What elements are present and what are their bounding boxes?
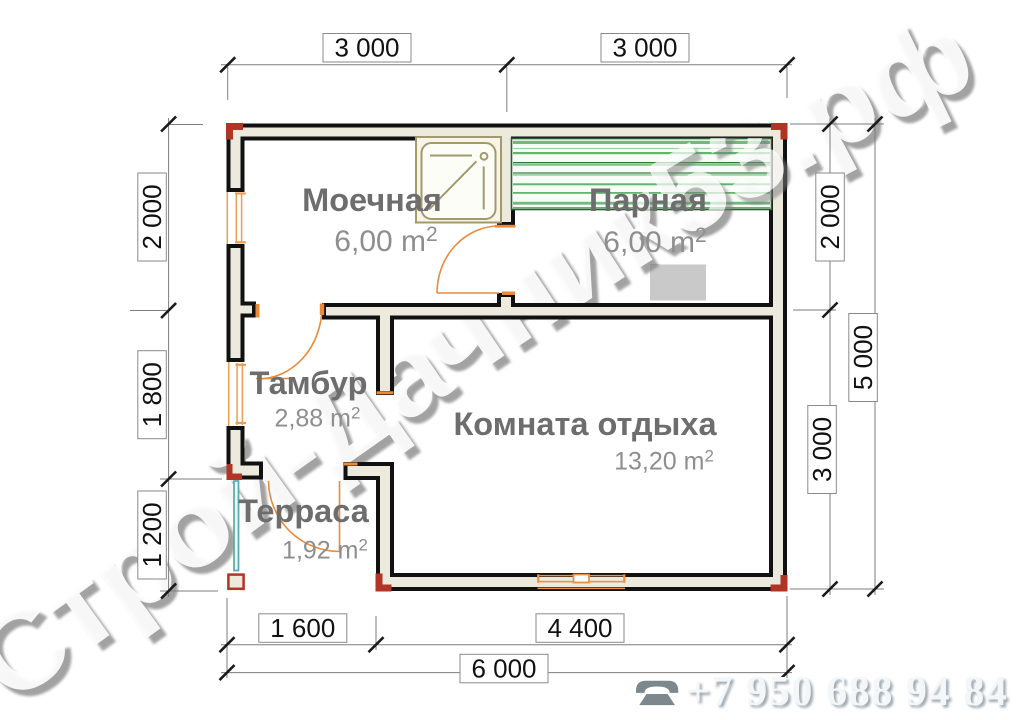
- svg-text:Моечная: Моечная: [302, 182, 442, 218]
- svg-text:1 800: 1 800: [137, 362, 167, 427]
- svg-text:6,00 m2: 6,00 m2: [334, 223, 437, 258]
- svg-text:3 000: 3 000: [612, 33, 677, 63]
- svg-text:Комната отдыха: Комната отдыха: [453, 406, 717, 442]
- svg-text:1 600: 1 600: [270, 613, 335, 643]
- svg-text:1 200: 1 200: [137, 502, 167, 567]
- svg-text:6,00 m2: 6,00 m2: [603, 224, 706, 259]
- svg-text:3 000: 3 000: [334, 33, 399, 63]
- svg-text:13,20 m2: 13,20 m2: [614, 447, 714, 476]
- svg-text:6 000: 6 000: [471, 653, 536, 683]
- svg-text:3 000: 3 000: [807, 417, 837, 482]
- svg-text:Парная: Парная: [589, 182, 707, 218]
- svg-text:5 000: 5 000: [848, 325, 878, 390]
- svg-text:Терраса: Терраса: [238, 493, 370, 529]
- svg-text:2,88 m2: 2,88 m2: [275, 404, 361, 433]
- svg-text:Тамбур: Тамбур: [250, 365, 368, 401]
- svg-text:1,92 m2: 1,92 m2: [282, 536, 368, 565]
- svg-text:+7 950 688 94 84: +7 950 688 94 84: [686, 669, 1009, 715]
- svg-text:4 400: 4 400: [547, 613, 612, 643]
- svg-text:2 000: 2 000: [815, 184, 845, 249]
- svg-text:2 000: 2 000: [137, 184, 167, 249]
